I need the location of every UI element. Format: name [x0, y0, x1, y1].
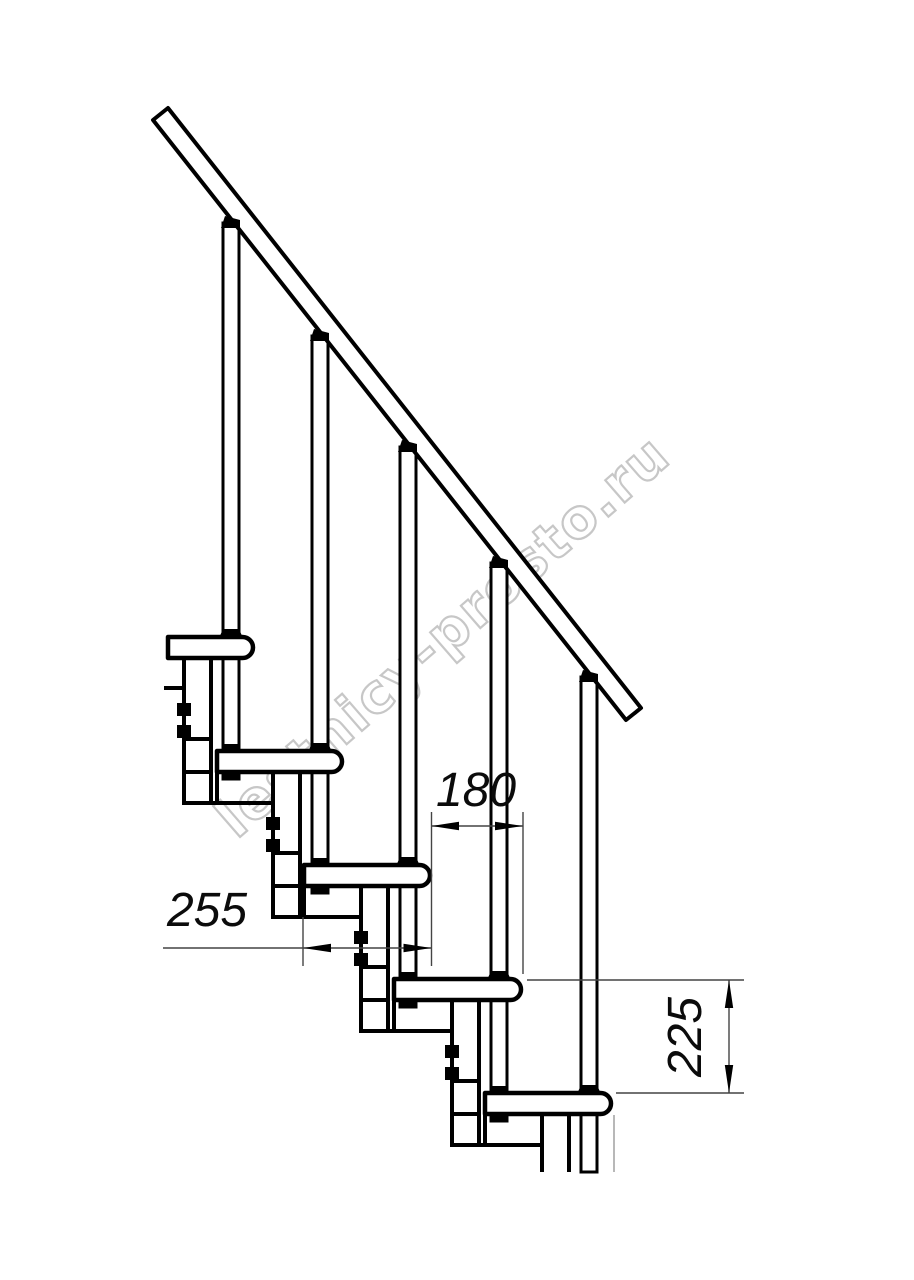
dimension-label-255: 255: [166, 884, 247, 937]
dimension-180: 180: [432, 764, 524, 974]
tread-5: [485, 1093, 611, 1114]
baluster-nut: [311, 885, 329, 893]
dimension-label-180: 180: [436, 764, 516, 817]
support-module-5: [542, 1114, 569, 1172]
arrowhead-left: [303, 944, 331, 952]
arrowhead-right: [495, 822, 523, 830]
baluster-foot-lower: [221, 744, 241, 752]
arrowhead-up: [725, 980, 733, 1008]
bolt: [447, 1069, 457, 1078]
baluster-1: [223, 223, 239, 779]
baluster-foot-lower: [489, 1086, 509, 1094]
baluster-foot: [577, 1085, 601, 1094]
baluster-nut: [222, 771, 240, 779]
arrowhead-left: [432, 822, 460, 830]
bolt: [356, 955, 366, 964]
baluster-foot-lower: [398, 972, 418, 980]
tread-4: [394, 979, 521, 1000]
baluster-nut: [490, 1113, 508, 1121]
bolt: [268, 819, 278, 828]
bolt: [356, 933, 366, 942]
bolt: [179, 705, 189, 714]
dimension-label-225: 225: [659, 997, 712, 1078]
baluster-3: [400, 447, 416, 1007]
modular-staircase-side-view: lestnicy-prosto.ru: [0, 0, 914, 1280]
baluster-foot: [487, 971, 511, 980]
baluster-foot: [308, 743, 332, 752]
baluster-nut: [399, 999, 417, 1007]
bolt: [447, 1047, 457, 1056]
tread-3: [304, 865, 430, 886]
arrowhead-down: [725, 1065, 733, 1093]
tread-2: [217, 751, 342, 772]
baluster-foot: [219, 629, 243, 638]
staircase-drawing-page: lestnicy-prosto.ru: [0, 0, 914, 1280]
bolt: [179, 727, 189, 736]
bolt: [268, 841, 278, 850]
baluster-foot-lower: [310, 858, 330, 866]
tread-1: [168, 637, 253, 658]
dimension-225: 225: [527, 980, 744, 1093]
baluster-foot: [396, 857, 420, 866]
baluster-2: [312, 336, 328, 893]
baluster-4: [491, 563, 507, 1121]
